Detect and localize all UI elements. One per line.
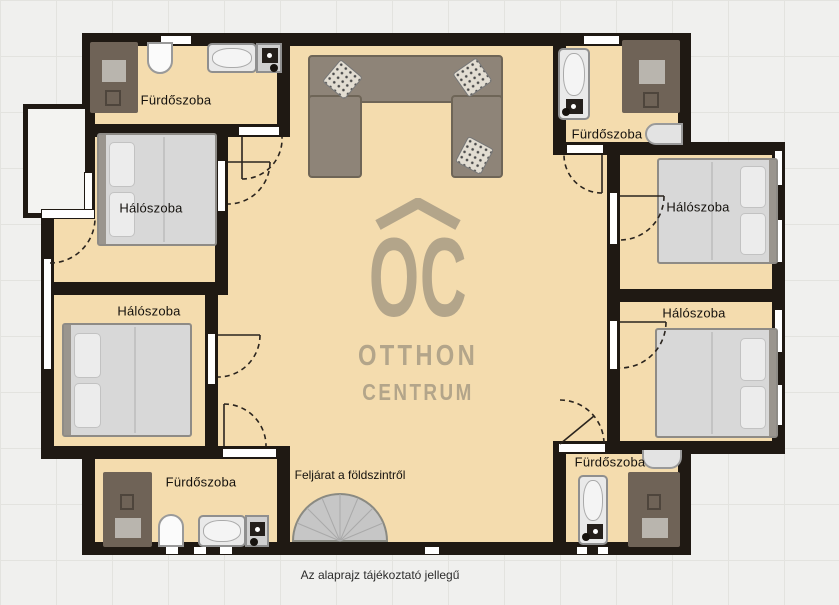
room-label-bathroom-bottom-left: Fürdőszoba — [166, 475, 237, 490]
bathtub-icon — [558, 48, 590, 120]
door-gap — [222, 448, 277, 458]
sink-icon — [645, 123, 683, 145]
bathtub-icon — [207, 43, 257, 73]
window — [583, 35, 620, 45]
window — [43, 258, 52, 370]
wardrobe-icon — [628, 472, 680, 547]
wall-tick — [194, 547, 206, 554]
door-gap — [609, 320, 618, 370]
wall-tick — [598, 547, 608, 554]
toilet-icon — [158, 514, 184, 547]
balcony-door — [41, 209, 95, 219]
room-label-bathroom-top-right: Fürdőszoba — [572, 127, 643, 142]
wall — [607, 289, 785, 302]
wall-tick — [425, 547, 439, 554]
balcony — [23, 104, 90, 218]
door-gap — [566, 144, 604, 154]
wall-tick — [577, 547, 587, 554]
door-gap — [217, 160, 226, 212]
wall — [553, 441, 566, 555]
wall — [41, 282, 228, 295]
sofa-icon — [308, 55, 503, 178]
toilet-icon — [147, 42, 173, 74]
door-gap — [609, 192, 618, 245]
floor-plan: OC OTTHON CENTRUM Fürdőszoba Hálószoba H… — [0, 0, 839, 605]
logo-line1: OTTHON — [348, 340, 487, 373]
door-gap — [238, 126, 280, 136]
room-label-bathroom-bottom-right: Fürdőszoba — [575, 455, 646, 470]
staircase-label: Feljárat a földszintről — [295, 468, 406, 482]
logo-monogram: OC — [369, 230, 468, 326]
bed-icon — [655, 328, 778, 438]
wardrobe-icon — [622, 40, 680, 113]
wardrobe-icon — [90, 42, 138, 113]
wall — [82, 446, 95, 555]
balcony-door — [84, 172, 93, 214]
washer-icon — [245, 515, 269, 547]
room-label-bedroom-right-bottom: Hálószoba — [662, 306, 725, 321]
washer-icon — [256, 43, 282, 73]
wardrobe-icon — [103, 472, 152, 547]
door-gap — [558, 443, 606, 453]
wall-tick — [220, 547, 232, 554]
room-label-bathroom-top-left: Fürdőszoba — [141, 93, 212, 108]
wall-tick — [166, 547, 178, 554]
room-label-bedroom-left-middle: Hálószoba — [117, 304, 180, 319]
bed-icon — [62, 323, 192, 437]
door-gap — [207, 333, 216, 385]
room-label-bedroom-left-top: Hálószoba — [119, 201, 182, 216]
room-label-bedroom-right-top: Hálószoba — [666, 200, 729, 215]
logo-line2: CENTRUM — [348, 379, 487, 406]
bed-icon — [97, 133, 217, 246]
wall — [678, 142, 785, 155]
wall — [277, 446, 290, 555]
bathtub-icon — [578, 475, 608, 545]
disclaimer-caption: Az alaprajz tájékoztató jellegű — [301, 568, 460, 582]
otthon-centrum-watermark: OC OTTHON CENTRUM — [333, 198, 503, 406]
sink-icon — [642, 450, 682, 469]
bathtub-icon — [198, 515, 246, 547]
